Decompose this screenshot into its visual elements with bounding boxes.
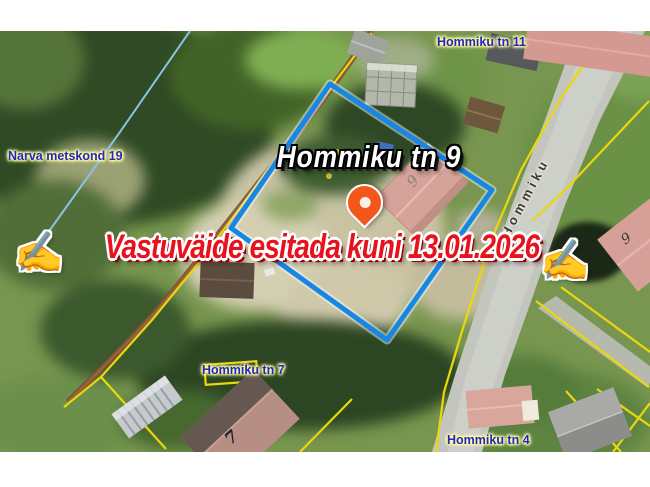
- writing-hand-icon: ✍: [540, 241, 590, 281]
- house-pink-bottom: [465, 385, 539, 429]
- parcel-label-hommiku-tn-11: Hommiku tn 11: [437, 35, 526, 49]
- page-title: Hommiku tn 9: [277, 139, 461, 175]
- greenhouse: [365, 63, 417, 108]
- deadline-banner: Vastuväide esitada kuni 13.01.2026: [105, 228, 539, 267]
- parcel-label-hommiku-tn-4: Hommiku tn 4: [447, 433, 530, 447]
- location-pin-hole: [357, 195, 373, 211]
- parcel-label-narva-metskond-19: Narva metskond 19: [8, 149, 123, 163]
- parcel-label-hommiku-tn-7: Hommiku tn 7: [202, 363, 285, 377]
- notice-image: Narva metskond 19 Hommiku tn 11 Hommiku …: [0, 0, 650, 487]
- writing-hand-icon: ✍: [14, 233, 64, 273]
